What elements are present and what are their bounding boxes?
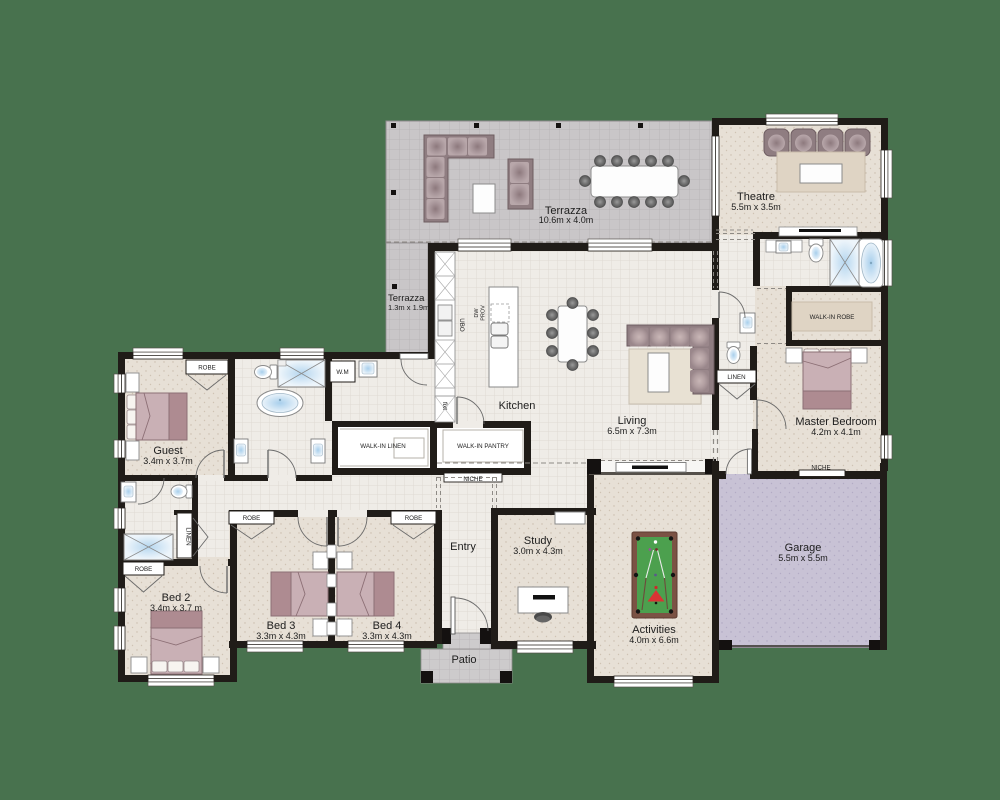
- svg-text:3.4m x 3.7 m: 3.4m x 3.7 m: [150, 603, 202, 613]
- svg-text:PROV: PROV: [481, 305, 487, 321]
- svg-text:5.5m x 3.5m: 5.5m x 3.5m: [731, 202, 781, 212]
- svg-text:10.6m x 4.0m: 10.6m x 4.0m: [539, 215, 594, 225]
- svg-text:3.4m x 3.7m: 3.4m x 3.7m: [143, 456, 193, 466]
- svg-text:Entry: Entry: [450, 541, 476, 553]
- svg-text:NICHE: NICHE: [811, 465, 830, 472]
- svg-text:5.5m x 5.5m: 5.5m x 5.5m: [778, 553, 828, 563]
- svg-text:DW: DW: [474, 308, 480, 318]
- svg-text:ROBE: ROBE: [405, 515, 423, 522]
- svg-text:ROBE: ROBE: [198, 365, 216, 372]
- svg-text:4.2m x 4.1m: 4.2m x 4.1m: [811, 427, 861, 437]
- svg-text:ROBE: ROBE: [135, 566, 153, 573]
- svg-text:fixt: fixt: [441, 402, 448, 410]
- svg-text:W.M: W.M: [336, 369, 348, 376]
- svg-text:Kitchen: Kitchen: [499, 400, 536, 412]
- svg-text:WALK-IN ROBE: WALK-IN ROBE: [810, 314, 855, 321]
- svg-text:3.3m x 4.3m: 3.3m x 4.3m: [256, 631, 306, 641]
- svg-text:LINEN: LINEN: [727, 374, 745, 381]
- svg-text:3.0m x 4.3m: 3.0m x 4.3m: [513, 546, 563, 556]
- svg-text:ROBE: ROBE: [243, 515, 261, 522]
- svg-text:4.0m x 6.6m: 4.0m x 6.6m: [629, 635, 679, 645]
- svg-text:WALK-IN PANTRY: WALK-IN PANTRY: [457, 443, 509, 450]
- svg-text:Patio: Patio: [451, 654, 476, 666]
- svg-text:6.5m x 7.3m: 6.5m x 7.3m: [607, 426, 657, 436]
- svg-text:1.3m x 1.9m: 1.3m x 1.9m: [388, 303, 429, 312]
- svg-text:LINEN: LINEN: [185, 527, 192, 545]
- svg-text:UBO: UBO: [458, 318, 465, 332]
- svg-text:WALK-IN LINEN: WALK-IN LINEN: [360, 443, 406, 450]
- svg-text:3.3m x 4.3m: 3.3m x 4.3m: [362, 631, 412, 641]
- svg-text:NICHE: NICHE: [463, 476, 482, 483]
